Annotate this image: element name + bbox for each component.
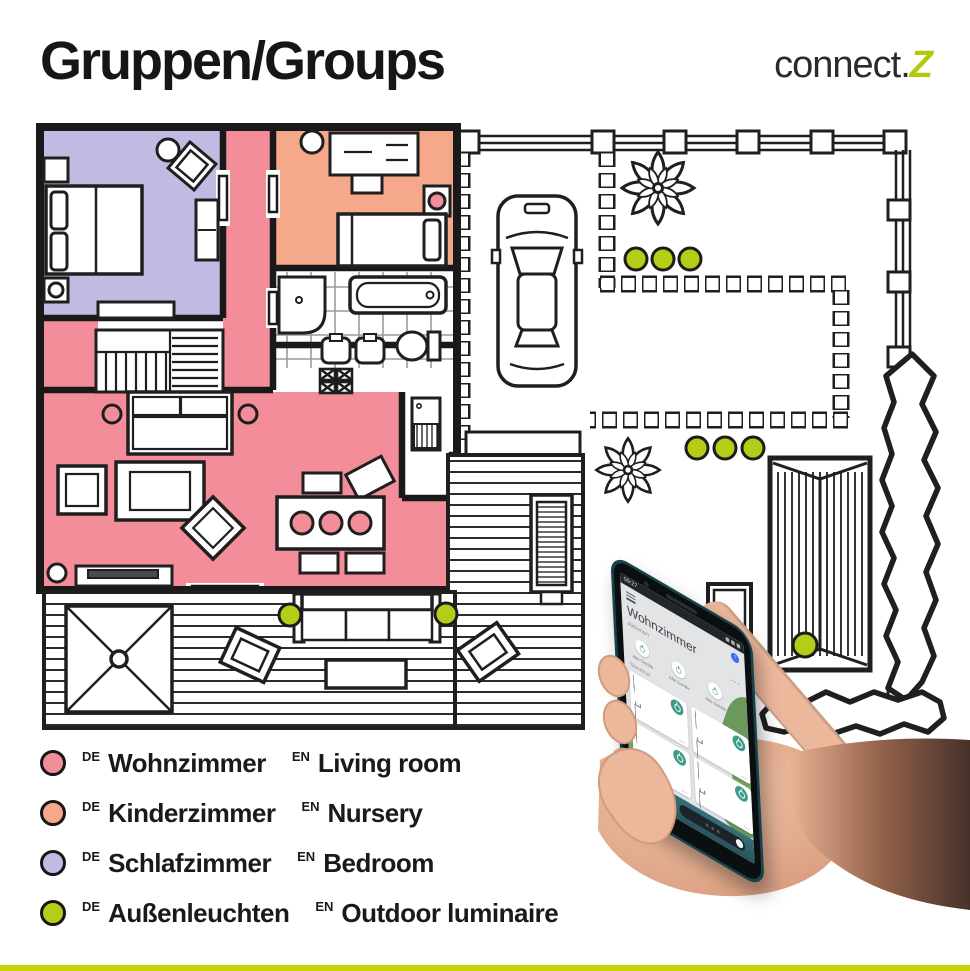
legend-row: DE Wohnzimmer EN Living room	[40, 744, 584, 782]
garden-flower	[622, 152, 694, 224]
tile-more-icon[interactable]: ...	[743, 823, 749, 830]
hallway	[223, 131, 273, 390]
outdoor-light-dot	[686, 437, 708, 459]
legend-swatch-outdoor	[40, 900, 66, 926]
power-icon	[712, 687, 717, 696]
parasol	[66, 606, 172, 712]
tile-more-icon[interactable]: ...	[741, 772, 747, 779]
power-icon	[676, 666, 681, 675]
slider-knob-icon[interactable]	[736, 838, 744, 850]
legend-row: DE Außenleuchten EN Outdoor luminaire	[40, 894, 584, 932]
outdoor-light-dot	[625, 248, 647, 270]
outdoor-light-dot	[279, 604, 301, 626]
legend-row: DE Schlafzimmer EN Bedroom	[40, 844, 584, 882]
legend: DE Wohnzimmer EN Living room DE Kinderzi…	[40, 744, 584, 944]
garden-gate	[770, 458, 870, 670]
outdoor-sofa	[294, 594, 440, 642]
kitchen	[273, 368, 453, 392]
legend-swatch-living	[40, 750, 66, 776]
tile-power-button[interactable]	[673, 747, 686, 768]
stairs	[96, 330, 223, 392]
outdoor-light-dot	[435, 603, 457, 625]
tile-power-button[interactable]	[732, 733, 745, 754]
outdoor-table	[326, 660, 406, 688]
legend-row: DE Kinderzimmer EN Nursery	[40, 794, 584, 832]
tile-more-icon[interactable]: ...	[679, 736, 685, 743]
tile-more-icon[interactable]: ...	[681, 787, 687, 794]
tile-power-button[interactable]	[735, 783, 748, 804]
fence-top	[457, 131, 906, 153]
car	[492, 196, 582, 386]
legend-swatch-bedroom	[40, 850, 66, 876]
tile-power-button[interactable]	[670, 697, 683, 718]
outdoor-light-dot	[714, 437, 736, 459]
garden-flower	[596, 438, 659, 501]
living-room	[44, 318, 98, 390]
outdoor-light-dot	[742, 437, 764, 459]
hedge-right	[882, 354, 938, 700]
power-icon	[640, 645, 645, 654]
outdoor-light-dot	[793, 633, 817, 657]
legend-swatch-nursery	[40, 800, 66, 826]
grill	[531, 495, 572, 604]
outdoor-light-dot	[652, 248, 674, 270]
bottom-accent-bar	[0, 965, 970, 971]
outdoor-light-dot	[679, 248, 701, 270]
